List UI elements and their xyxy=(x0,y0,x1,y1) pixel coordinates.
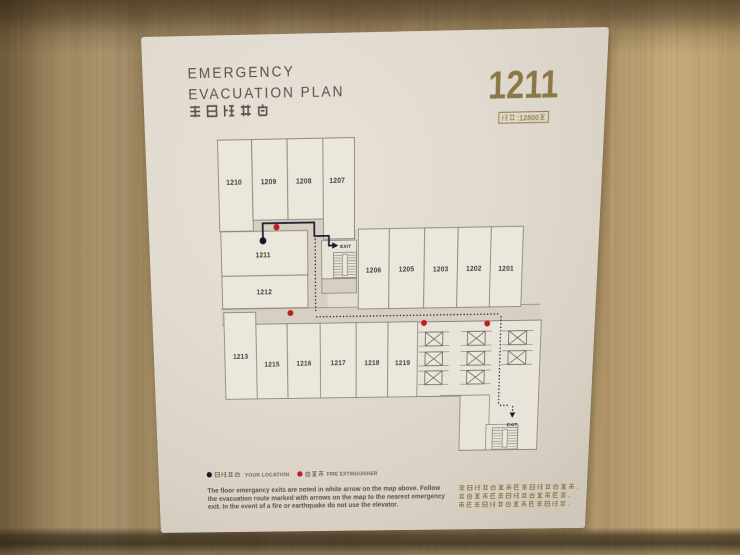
svg-text:1212: 1212 xyxy=(256,288,272,297)
svg-text:1211: 1211 xyxy=(255,250,270,259)
svg-text:1203: 1203 xyxy=(433,265,449,274)
svg-text:1201: 1201 xyxy=(498,264,514,273)
svg-text:1219: 1219 xyxy=(395,358,410,367)
svg-text:1208: 1208 xyxy=(296,176,312,185)
svg-text:1209: 1209 xyxy=(261,177,277,186)
svg-text:1207: 1207 xyxy=(329,176,345,185)
svg-text:1218: 1218 xyxy=(364,358,379,367)
svg-text:YOUR LOCATION: YOUR LOCATION xyxy=(245,472,290,478)
svg-text:EVACUATION PLAN: EVACUATION PLAN xyxy=(188,84,344,104)
svg-text:exit. In the event of a fire o: exit. In the event of a fire or earthqua… xyxy=(208,500,398,510)
svg-text:1205: 1205 xyxy=(399,265,415,274)
svg-text::12800: :12800 xyxy=(517,113,539,123)
svg-text:1216: 1216 xyxy=(296,359,311,368)
svg-text:1210: 1210 xyxy=(226,178,242,187)
svg-text:1211: 1211 xyxy=(488,62,560,108)
svg-text:EXIT: EXIT xyxy=(507,423,518,429)
svg-text:FIRE EXTINGUISHER: FIRE EXTINGUISHER xyxy=(327,472,378,478)
svg-text:1215: 1215 xyxy=(264,360,279,369)
svg-text:EXIT: EXIT xyxy=(340,244,352,250)
svg-text:1206: 1206 xyxy=(366,265,382,274)
svg-text:EMERGENCY: EMERGENCY xyxy=(187,64,295,83)
svg-text:1217: 1217 xyxy=(331,359,346,368)
svg-text:1213: 1213 xyxy=(233,352,248,361)
svg-text:1202: 1202 xyxy=(466,264,482,273)
